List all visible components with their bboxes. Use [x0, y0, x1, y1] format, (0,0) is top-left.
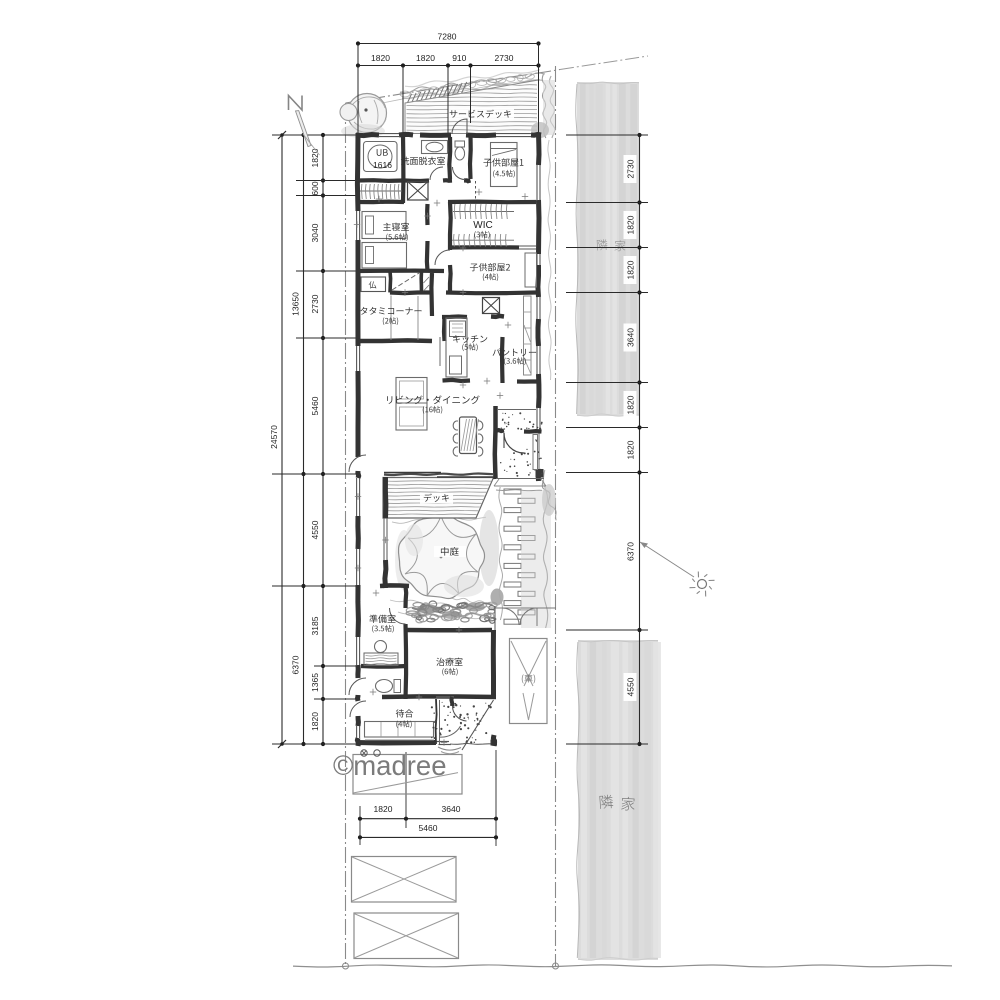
- svg-text:3185: 3185: [310, 616, 320, 635]
- svg-text:4550: 4550: [310, 520, 320, 539]
- svg-text:13650: 13650: [291, 292, 301, 316]
- svg-text:910: 910: [452, 53, 466, 63]
- svg-text:24570: 24570: [269, 425, 279, 449]
- svg-text:4550: 4550: [626, 677, 636, 696]
- svg-text:1820: 1820: [626, 260, 636, 279]
- svg-text:2730: 2730: [626, 159, 636, 178]
- svg-text:©madree: ©madree: [333, 750, 447, 781]
- svg-text:1820: 1820: [626, 395, 636, 414]
- svg-text:1820: 1820: [626, 440, 636, 459]
- svg-text:5460: 5460: [419, 823, 438, 833]
- svg-text:WIC: WIC: [473, 220, 492, 231]
- svg-text:6370: 6370: [626, 542, 636, 561]
- svg-text:2730: 2730: [310, 294, 320, 313]
- svg-text:1820: 1820: [310, 148, 320, 167]
- svg-text:1365: 1365: [310, 673, 320, 692]
- svg-text:6370: 6370: [291, 655, 301, 674]
- svg-text:2730: 2730: [495, 53, 514, 63]
- svg-text:7280: 7280: [438, 32, 457, 42]
- svg-text:3040: 3040: [310, 223, 320, 242]
- svg-text:5460: 5460: [310, 396, 320, 415]
- svg-text:1616: 1616: [373, 160, 392, 170]
- svg-text:1820: 1820: [310, 712, 320, 731]
- svg-text:1820: 1820: [626, 215, 636, 234]
- svg-text:1820: 1820: [416, 53, 435, 63]
- svg-text:600: 600: [310, 181, 320, 195]
- svg-text:1820: 1820: [371, 53, 390, 63]
- svg-text:3640: 3640: [442, 804, 461, 814]
- svg-text:3640: 3640: [626, 328, 636, 347]
- svg-text:1820: 1820: [374, 804, 393, 814]
